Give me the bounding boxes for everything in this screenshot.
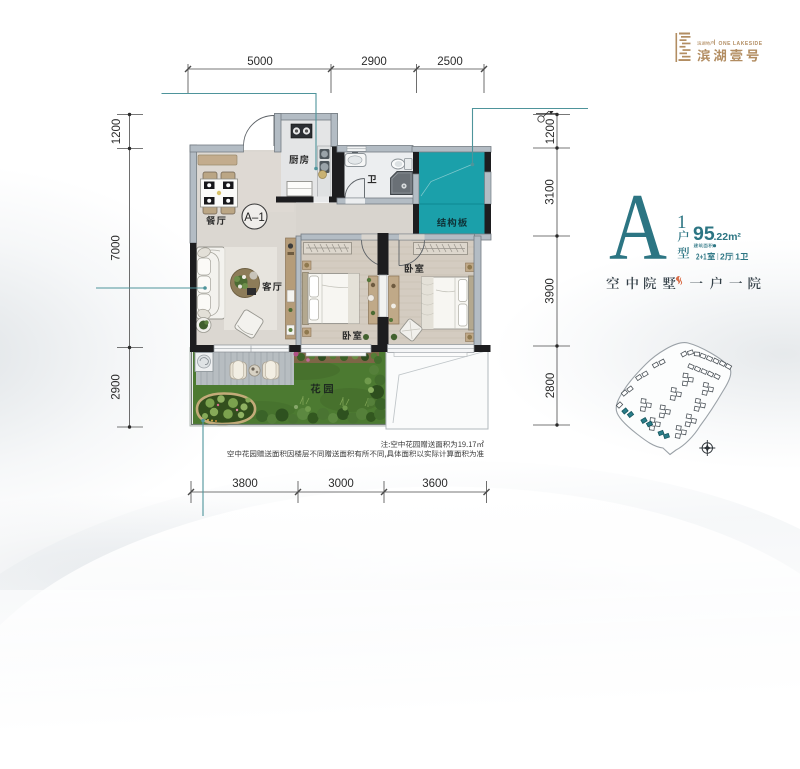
svg-text:2900: 2900 <box>361 56 387 68</box>
svg-text:2+1: 2+1 <box>696 252 707 262</box>
svg-text:3000: 3000 <box>328 478 354 490</box>
svg-text:1: 1 <box>677 212 687 233</box>
svg-text:2800: 2800 <box>545 373 557 399</box>
svg-text:3900: 3900 <box>545 278 557 304</box>
svg-text:2: 2 <box>720 252 725 262</box>
svg-text:ONE LAKESIDE: ONE LAKESIDE <box>719 41 763 47</box>
svg-text:1: 1 <box>735 252 740 262</box>
svg-text:7000: 7000 <box>111 235 123 261</box>
svg-text:2500: 2500 <box>437 56 463 68</box>
svg-text:2900: 2900 <box>111 374 123 400</box>
svg-text:3600: 3600 <box>422 478 448 490</box>
svg-text:A–1: A–1 <box>244 212 264 224</box>
svg-text:3800: 3800 <box>232 478 258 490</box>
svg-text:A: A <box>609 174 667 280</box>
svg-text:.22m²: .22m² <box>714 231 742 243</box>
svg-text:1200: 1200 <box>111 119 123 145</box>
svg-text:1200: 1200 <box>545 119 557 145</box>
svg-text:3100: 3100 <box>545 179 557 205</box>
svg-text:5000: 5000 <box>247 56 273 68</box>
svg-text:95: 95 <box>693 223 715 245</box>
